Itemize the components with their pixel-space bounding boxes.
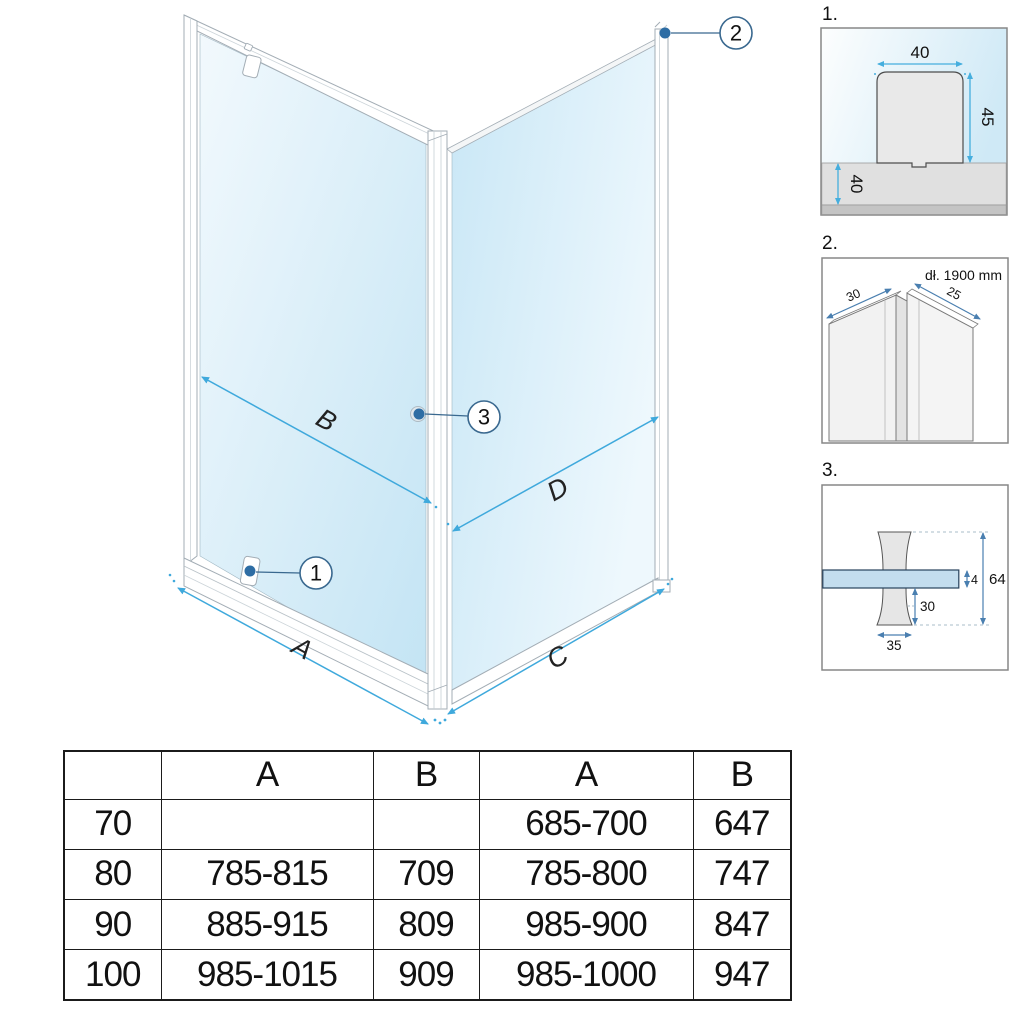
pivot-tick-1: [655, 22, 660, 27]
table-cell: 947: [693, 950, 791, 1000]
column-header: B: [693, 751, 791, 799]
detail-1-wall-base: [822, 205, 1006, 215]
detail-3-label: 3.: [822, 460, 838, 482]
size-table-head: ABAB: [64, 751, 791, 799]
table-row: 90885-915809985-900847: [64, 900, 791, 950]
detail-2-label: 2.: [822, 233, 838, 255]
column-header: [64, 751, 161, 799]
table-row: 70685-700647: [64, 799, 791, 849]
table-cell: 80: [64, 849, 161, 899]
detail-2-length-note: dł. 1900 mm: [925, 267, 1002, 283]
door-knob-dot: [414, 409, 425, 420]
detail-3-glass-strip: [823, 570, 959, 588]
corner-post-profile: [428, 131, 447, 709]
callout-1-number: 1: [310, 561, 322, 586]
top-pivot-dot: [660, 28, 671, 39]
detail-3-dim-glass: 4: [971, 573, 978, 587]
table-cell: 709: [373, 849, 479, 899]
table-cell: [161, 799, 373, 849]
table-cell: 985-1000: [479, 950, 693, 1000]
handle-pivot-dot: [245, 566, 256, 577]
detail-2-corner-profile: 30 25 dł. 1900 mm: [821, 257, 1009, 444]
detail-1-dot-left: [874, 73, 876, 75]
detail-1-dim-wall: 40: [847, 175, 866, 194]
callout-3-number: 3: [478, 405, 490, 430]
table-cell: 785-815: [161, 849, 373, 899]
table-cell: 685-700: [479, 799, 693, 849]
wall-profile-right: [655, 29, 668, 582]
detail-1-profile-section: 40 45 40: [820, 27, 1008, 216]
table-cell: 747: [693, 849, 791, 899]
detail-1-dot-right: [964, 73, 966, 75]
detail-2-middle-step: [896, 295, 907, 441]
header-row: ABAB: [64, 751, 791, 799]
callout-2-number: 2: [730, 21, 742, 46]
callout-2: 2: [671, 17, 752, 49]
table-cell: 100: [64, 950, 161, 1000]
detail-1-label: 1.: [822, 4, 838, 26]
table-cell: [373, 799, 479, 849]
table-cell: 785-800: [479, 849, 693, 899]
side-glass-panel: [452, 42, 658, 690]
detail-3-knob-section: 4 64 30 35: [821, 484, 1009, 671]
detail-3-dim-width: 35: [886, 638, 901, 653]
detail-1-dim-right: 45: [978, 108, 997, 127]
table-cell: 985-1015: [161, 950, 373, 1000]
detail-1-dim-top: 40: [911, 43, 930, 62]
table-row: 100985-1015909985-1000947: [64, 950, 791, 1000]
detail-1-profile-body: [877, 72, 963, 167]
column-header: A: [479, 751, 693, 799]
size-table: ABAB 70685-70064780785-815709785-8007479…: [63, 750, 792, 1001]
detail-3-dim-knob: 30: [920, 599, 935, 614]
detail-3-knob-top: [878, 532, 911, 570]
table-cell: 885-915: [161, 900, 373, 950]
table-cell: 70: [64, 799, 161, 849]
table-cell: 909: [373, 950, 479, 1000]
table-cell: 809: [373, 900, 479, 950]
shower-enclosure-diagram: B A D C 1 2 3: [0, 0, 810, 745]
table-cell: 847: [693, 900, 791, 950]
table-row: 80785-815709785-800747: [64, 849, 791, 899]
detail-3-dim-total: 64: [989, 571, 1006, 588]
column-header: B: [373, 751, 479, 799]
table-cell: 985-900: [479, 900, 693, 950]
column-header: A: [161, 751, 373, 799]
table-cell: 647: [693, 799, 791, 849]
size-table-body: 70685-70064780785-815709785-80074790885-…: [64, 799, 791, 1000]
table-cell: 90: [64, 900, 161, 950]
